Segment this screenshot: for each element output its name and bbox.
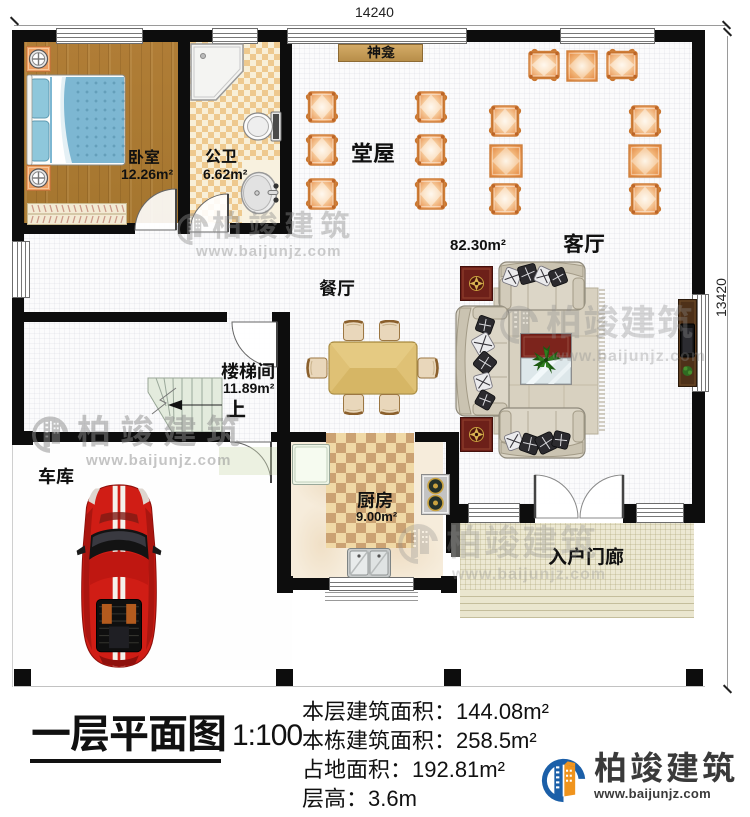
- svg-text:3.6m: 3.6m: [368, 786, 417, 811]
- svg-text:258.5m²: 258.5m²: [456, 728, 537, 753]
- svg-text:192.81m²: 192.81m²: [412, 757, 505, 782]
- svg-text:144.08m²: 144.08m²: [456, 699, 549, 724]
